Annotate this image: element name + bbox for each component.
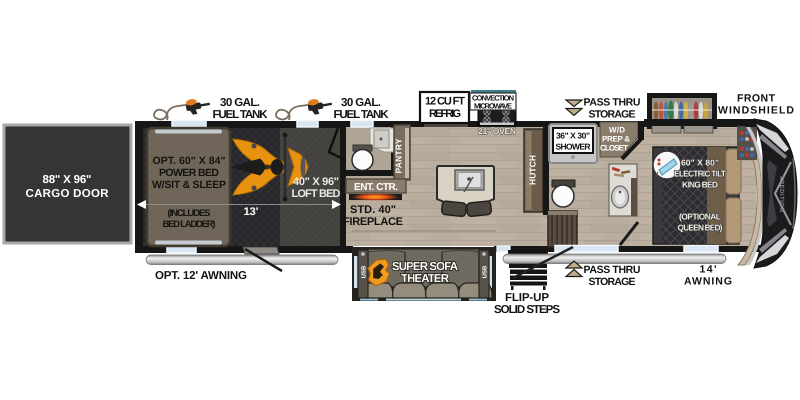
svg-text:CARGO DOOR: CARGO DOOR bbox=[26, 188, 110, 200]
svg-text:14': 14' bbox=[700, 264, 717, 276]
svg-text:21" OVEN: 21" OVEN bbox=[478, 126, 516, 136]
svg-text:W/SIT & SLEEP: W/SIT & SLEEP bbox=[152, 179, 226, 191]
svg-text:(INCLUDES: (INCLUDES bbox=[168, 208, 211, 219]
svg-text:REFRIG: REFRIG bbox=[429, 108, 461, 120]
svg-text:30 GAL.: 30 GAL. bbox=[220, 97, 260, 109]
svg-text:STD. 40": STD. 40" bbox=[350, 204, 396, 216]
svg-text:POWER BED: POWER BED bbox=[159, 167, 219, 179]
svg-text:FIREPLACE: FIREPLACE bbox=[343, 216, 403, 228]
svg-text:QUEEN BED): QUEEN BED) bbox=[678, 223, 723, 233]
svg-text:USB: USB bbox=[482, 265, 489, 278]
svg-text:LOFT BED: LOFT BED bbox=[292, 188, 341, 200]
svg-text:AWNING: AWNING bbox=[684, 276, 732, 288]
svg-text:KING BED: KING BED bbox=[682, 180, 718, 190]
svg-text:STORAGE: STORAGE bbox=[589, 109, 636, 121]
svg-text:60" X 80": 60" X 80" bbox=[681, 158, 719, 168]
svg-text:ENT. CTR.: ENT. CTR. bbox=[354, 182, 398, 193]
svg-text:PREP &: PREP & bbox=[602, 135, 630, 144]
svg-text:ELECTRIC TILT: ELECTRIC TILT bbox=[674, 169, 727, 179]
svg-text:USB: USB bbox=[361, 265, 368, 278]
svg-text:XPEDITION: XPEDITION bbox=[778, 176, 785, 213]
svg-text:13': 13' bbox=[244, 206, 259, 218]
svg-text:36" X 30": 36" X 30" bbox=[556, 131, 590, 141]
svg-text:SOLID STEPS: SOLID STEPS bbox=[494, 304, 560, 316]
svg-text:PANTRY: PANTRY bbox=[394, 138, 404, 173]
svg-text:SHOWER: SHOWER bbox=[556, 142, 591, 152]
svg-text:OPT. 60" X 84": OPT. 60" X 84" bbox=[153, 155, 226, 167]
svg-text:THEATER: THEATER bbox=[401, 273, 450, 285]
svg-text:OPT. 12' AWNING: OPT. 12' AWNING bbox=[155, 270, 247, 282]
svg-text:HUTCH: HUTCH bbox=[528, 155, 538, 185]
svg-text:40" X 96": 40" X 96" bbox=[293, 176, 339, 188]
svg-text:CLOSET: CLOSET bbox=[600, 144, 628, 153]
svg-text:(OPTIONAL: (OPTIONAL bbox=[679, 212, 721, 222]
svg-text:FLIP-UP: FLIP-UP bbox=[505, 292, 549, 304]
svg-text:W/D: W/D bbox=[609, 126, 625, 135]
svg-text:SUPER SOFA: SUPER SOFA bbox=[392, 261, 458, 273]
svg-text:88" X 96": 88" X 96" bbox=[43, 174, 92, 186]
svg-text:FRONT: FRONT bbox=[737, 93, 776, 105]
svg-text:WINDSHIELD: WINDSHIELD bbox=[718, 105, 794, 117]
svg-text:FUEL TANK: FUEL TANK bbox=[334, 109, 390, 121]
svg-text:PASS THRU: PASS THRU bbox=[584, 97, 641, 109]
svg-text:STORAGE: STORAGE bbox=[589, 276, 636, 288]
svg-text:MICROWAVE: MICROWAVE bbox=[474, 102, 512, 111]
svg-text:12 CU FT: 12 CU FT bbox=[425, 96, 465, 108]
svg-text:BED LADDER): BED LADDER) bbox=[163, 219, 216, 230]
svg-text:FUEL TANK: FUEL TANK bbox=[213, 109, 269, 121]
svg-text:30 GAL.: 30 GAL. bbox=[341, 97, 381, 109]
svg-text:PASS THRU: PASS THRU bbox=[584, 264, 641, 276]
